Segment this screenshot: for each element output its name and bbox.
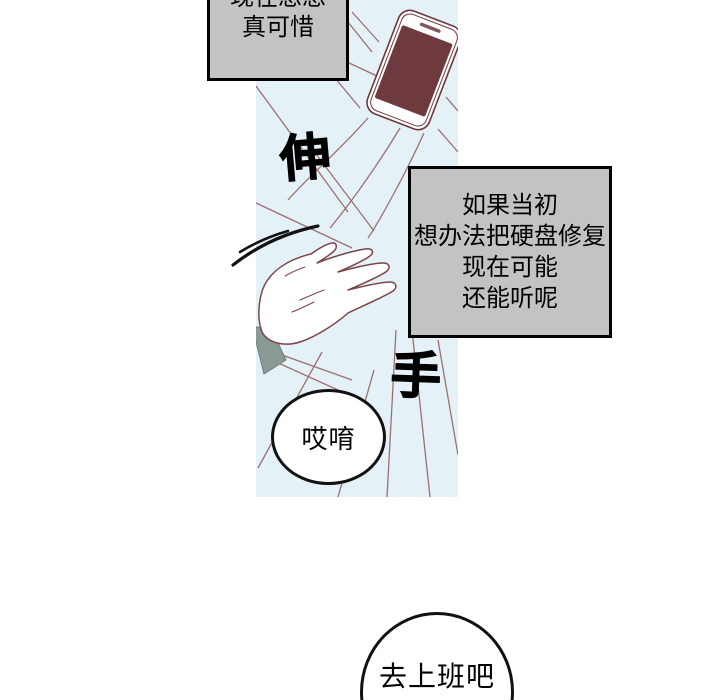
narration-text: 现在想想 <box>230 0 326 13</box>
narration-text: 想办法把硬盘修复 <box>414 221 606 252</box>
speech-text: 哎唷 <box>301 419 355 456</box>
sfx-hand: 手 <box>390 335 442 409</box>
speech-text: 去上班吧 <box>379 655 495 695</box>
narration-text: 真可惜 <box>242 13 314 43</box>
narration-text: 现在可能 <box>462 252 558 283</box>
narration-text: 如果当初 <box>462 190 558 221</box>
narration-box-regret: 现在想想 真可惜 <box>207 0 349 81</box>
speech-bubble-work: 去上班吧 <box>360 612 514 700</box>
comic-page: 现在想想 真可惜 如果当初 想办法把硬盘修复 现在可能 还能听呢 伸 手 哎唷 … <box>0 0 720 700</box>
speech-bubble-aiyo: 哎唷 <box>271 389 386 485</box>
sfx-stretch: 伸 <box>277 116 333 192</box>
narration-text: 还能听呢 <box>462 283 558 314</box>
narration-box-harddrive: 如果当初 想办法把硬盘修复 现在可能 还能听呢 <box>408 166 612 338</box>
